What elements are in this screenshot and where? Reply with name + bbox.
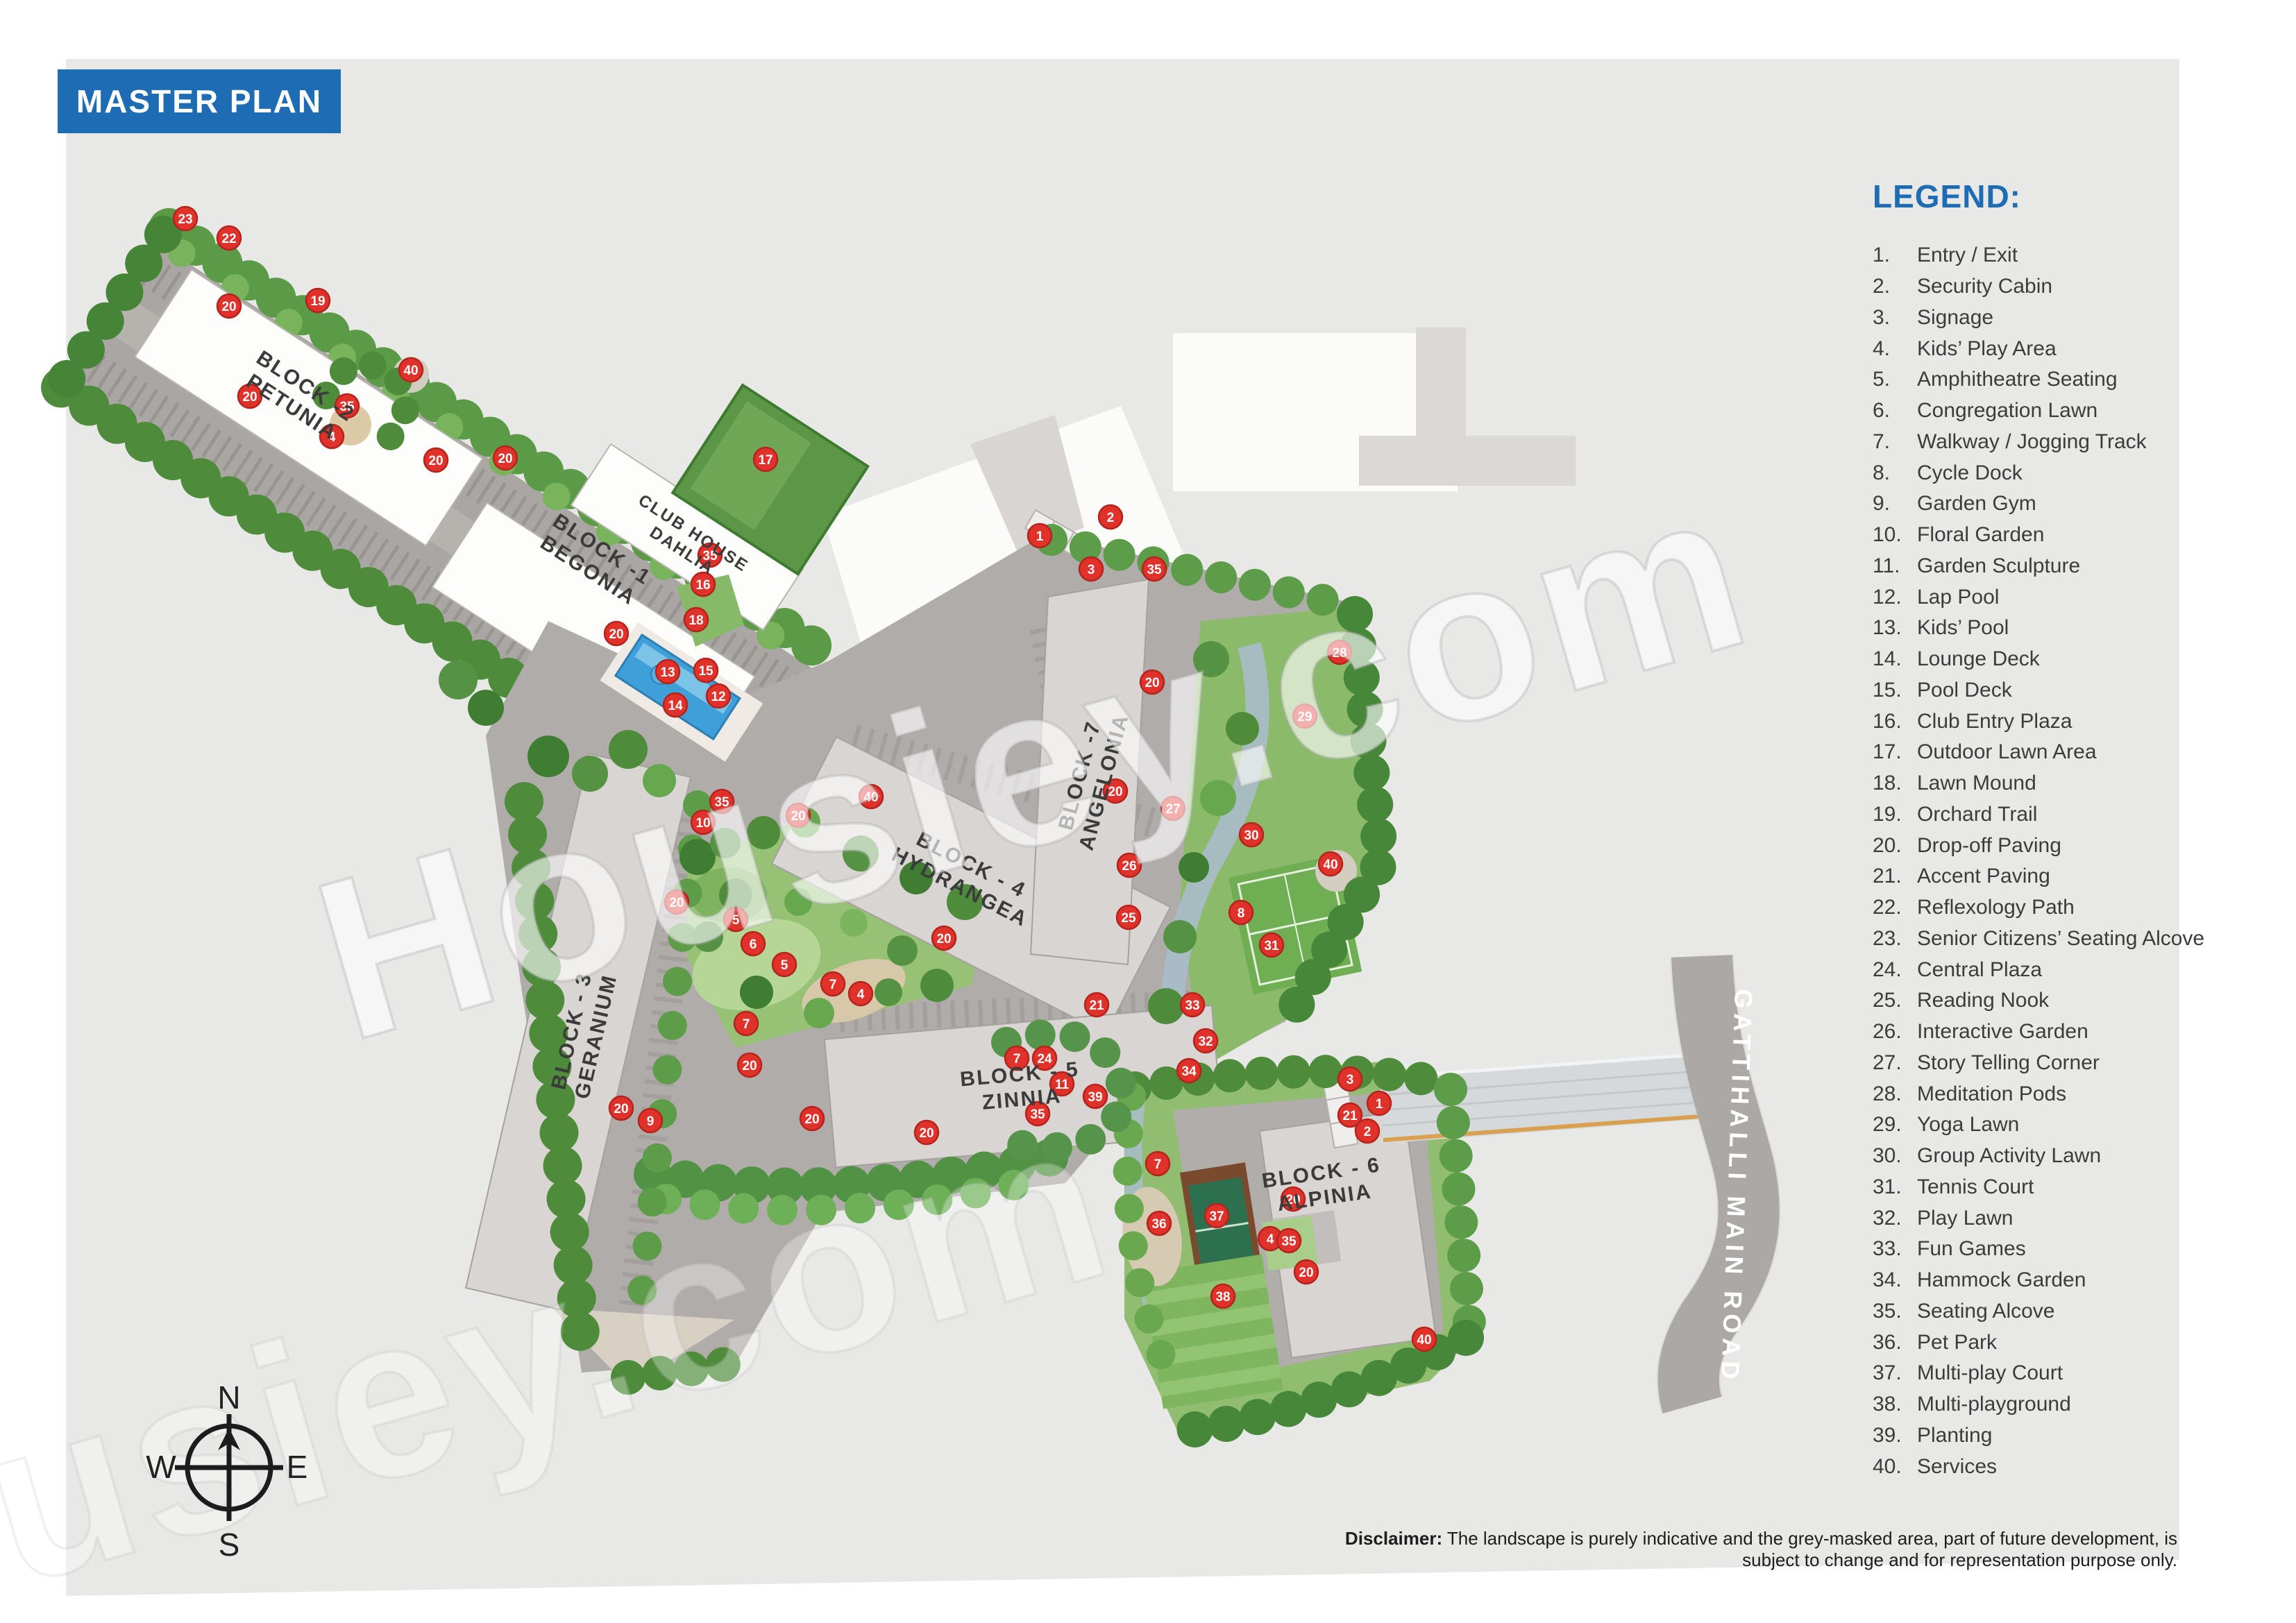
legend-item: 12.Lap Pool xyxy=(1873,581,2199,613)
svg-text:40: 40 xyxy=(1417,1333,1431,1348)
legend-item-label: Reflexology Path xyxy=(1917,896,2075,919)
legend-item: 11.Garden Sculpture xyxy=(1873,551,2199,582)
legend-item: 32.Play Lawn xyxy=(1873,1203,2199,1234)
legend-item-number: 6. xyxy=(1873,399,1917,423)
legend-item: 33.Fun Games xyxy=(1873,1234,2199,1265)
legend-item-label: Lounge Deck xyxy=(1917,647,2040,671)
map-marker: 34 xyxy=(1177,1059,1201,1082)
map-marker: 7 xyxy=(734,1012,758,1035)
map-marker: 16 xyxy=(691,572,715,596)
map-marker: 20 xyxy=(605,622,628,645)
map-marker: 31 xyxy=(1260,933,1283,957)
svg-text:7: 7 xyxy=(743,1017,750,1032)
map-marker: 40 xyxy=(399,358,423,382)
legend-item-number: 27. xyxy=(1873,1051,1917,1075)
svg-text:20: 20 xyxy=(498,452,512,466)
legend-item-number: 28. xyxy=(1873,1082,1917,1106)
legend-item-number: 1. xyxy=(1873,244,1917,267)
svg-text:22: 22 xyxy=(221,232,236,246)
disclaimer: Disclaimer: The landscape is purely indi… xyxy=(1301,1528,2177,1571)
legend-item: 15.Pool Deck xyxy=(1873,675,2199,706)
legend-item-label: Orchard Trail xyxy=(1917,803,2037,826)
map-marker: 20 xyxy=(1294,1260,1318,1284)
legend-item-number: 11. xyxy=(1873,554,1917,578)
legend-item-label: Meditation Pods xyxy=(1917,1082,2066,1106)
map-marker: 21 xyxy=(1085,993,1108,1017)
map-marker: 35 xyxy=(1142,557,1166,581)
svg-text:3: 3 xyxy=(1347,1073,1354,1087)
map-marker: 35 xyxy=(1277,1229,1301,1252)
legend-item-number: 40. xyxy=(1873,1455,1917,1479)
legend-item: 35.Seating Alcove xyxy=(1873,1296,2199,1327)
svg-text:4: 4 xyxy=(857,987,865,1002)
svg-text:E: E xyxy=(287,1449,308,1485)
svg-text:8: 8 xyxy=(1238,906,1245,921)
svg-text:38: 38 xyxy=(1215,1290,1230,1305)
svg-text:20: 20 xyxy=(1299,1266,1313,1280)
map-marker: 20 xyxy=(800,1107,824,1130)
svg-text:33: 33 xyxy=(1185,999,1199,1013)
legend-item-number: 33. xyxy=(1873,1237,1917,1261)
map-marker: 20 xyxy=(609,1096,633,1120)
svg-text:14: 14 xyxy=(668,699,683,713)
legend-item-number: 2. xyxy=(1873,275,1917,298)
svg-text:37: 37 xyxy=(1209,1209,1224,1224)
map-marker: 17 xyxy=(754,448,777,471)
svg-text:20: 20 xyxy=(936,932,951,946)
svg-text:35: 35 xyxy=(1147,563,1162,577)
legend-item-label: Group Activity Lawn xyxy=(1917,1144,2101,1168)
legend-item-number: 24. xyxy=(1873,958,1917,982)
legend-item-label: Entry / Exit xyxy=(1917,244,2018,267)
legend-item-label: Congregation Lawn xyxy=(1917,399,2097,423)
legend-item: 20.Drop-off Paving xyxy=(1873,830,2199,861)
map-marker: 19 xyxy=(306,289,330,312)
legend-item-label: Drop-off Paving xyxy=(1917,834,2061,858)
legend-item-number: 29. xyxy=(1873,1113,1917,1137)
legend-item-number: 4. xyxy=(1873,337,1917,361)
legend-item-label: Kids’ Pool xyxy=(1917,616,2009,640)
svg-text:21: 21 xyxy=(1089,999,1104,1013)
svg-text:1: 1 xyxy=(1036,529,1044,544)
legend-item-label: Accent Paving xyxy=(1917,865,2050,888)
legend-item-number: 21. xyxy=(1873,865,1917,888)
legend-item-number: 26. xyxy=(1873,1020,1917,1044)
legend-item-number: 20. xyxy=(1873,834,1917,858)
legend-item-number: 25. xyxy=(1873,989,1917,1012)
map-marker: 20 xyxy=(493,446,517,470)
map-marker: 2 xyxy=(1099,505,1122,529)
legend-item-label: Amphitheatre Seating xyxy=(1917,368,2118,391)
legend-item: 4.Kids’ Play Area xyxy=(1873,333,2199,364)
legend-item-number: 34. xyxy=(1873,1268,1917,1292)
legend-item: 9.Garden Gym xyxy=(1873,488,2199,520)
svg-text:25: 25 xyxy=(1121,911,1136,926)
svg-text:20: 20 xyxy=(609,627,623,642)
legend-item: 28.Meditation Pods xyxy=(1873,1078,2199,1110)
legend-item: 29.Yoga Lawn xyxy=(1873,1110,2199,1141)
legend-item: 7.Walkway / Jogging Track xyxy=(1873,427,2199,458)
svg-text:40: 40 xyxy=(403,364,418,378)
legend-item-number: 31. xyxy=(1873,1175,1917,1199)
legend-item-label: Garden Sculpture xyxy=(1917,554,2080,578)
svg-text:20: 20 xyxy=(614,1102,628,1116)
map-marker: 7 xyxy=(821,972,845,996)
legend-item: 10.Floral Garden xyxy=(1873,520,2199,551)
legend-item: 8.Cycle Dock xyxy=(1873,457,2199,488)
svg-text:31: 31 xyxy=(1264,939,1279,953)
map-marker: 8 xyxy=(1229,901,1253,924)
legend-item-number: 35. xyxy=(1873,1300,1917,1323)
map-marker: 3 xyxy=(1338,1067,1362,1091)
legend-item-label: Pool Deck xyxy=(1917,679,2012,702)
legend-item-label: Planting xyxy=(1917,1424,1992,1447)
legend-item-number: 8. xyxy=(1873,461,1917,485)
legend-item: 30.Group Activity Lawn xyxy=(1873,1141,2199,1172)
map-marker: 12 xyxy=(707,684,730,708)
legend-item-number: 9. xyxy=(1873,492,1917,516)
legend-item-label: Walkway / Jogging Track xyxy=(1917,430,2147,454)
legend-item: 22.Reflexology Path xyxy=(1873,892,2199,924)
legend-item: 16.Club Entry Plaza xyxy=(1873,706,2199,737)
legend-item-label: Garden Gym xyxy=(1917,492,2036,516)
legend-item-number: 14. xyxy=(1873,647,1917,671)
svg-text:19: 19 xyxy=(310,294,325,309)
legend-item-label: Services xyxy=(1917,1455,1997,1479)
legend-item: 2.Security Cabin xyxy=(1873,271,2199,303)
legend-item-number: 37. xyxy=(1873,1361,1917,1385)
disclaimer-text: The landscape is purely indicative and t… xyxy=(1442,1528,2177,1570)
legend-item: 39.Planting xyxy=(1873,1420,2199,1452)
legend-item-number: 17. xyxy=(1873,740,1917,764)
legend-item: 31.Tennis Court xyxy=(1873,1172,2199,1203)
map-marker: 40 xyxy=(1319,852,1342,876)
legend-item: 36.Pet Park xyxy=(1873,1327,2199,1358)
legend-item-number: 3. xyxy=(1873,306,1917,330)
svg-text:36: 36 xyxy=(1151,1217,1166,1232)
legend-item-number: 13. xyxy=(1873,616,1917,640)
legend-item: 17.Outdoor Lawn Area xyxy=(1873,737,2199,768)
legend-item-number: 19. xyxy=(1873,803,1917,826)
svg-text:34: 34 xyxy=(1181,1064,1197,1079)
legend-item-label: Kids’ Play Area xyxy=(1917,337,2057,361)
legend-item: 1.Entry / Exit xyxy=(1873,240,2199,271)
legend-item: 21.Accent Paving xyxy=(1873,861,2199,892)
svg-text:N: N xyxy=(217,1379,240,1416)
legend-item-label: Story Telling Corner xyxy=(1917,1051,2100,1075)
legend-item: 27.Story Telling Corner xyxy=(1873,1048,2199,1079)
svg-text:7: 7 xyxy=(829,978,837,992)
map-marker: 1 xyxy=(1367,1091,1391,1115)
master-plan-page: 2322192020354402020203516181713151214123… xyxy=(0,0,2296,1623)
legend-item: 23.Senior Citizens’ Seating Alcove xyxy=(1873,924,2199,955)
legend-item-number: 36. xyxy=(1873,1331,1917,1354)
map-marker: 4 xyxy=(849,982,872,1005)
map-marker: 38 xyxy=(1211,1284,1235,1308)
map-marker: 13 xyxy=(656,660,679,683)
svg-text:23: 23 xyxy=(178,212,192,227)
legend-item: 18.Lawn Mound xyxy=(1873,768,2199,799)
map-marker: 20 xyxy=(217,294,241,318)
map-marker: 3 xyxy=(1079,557,1103,581)
legend-item-label: Multi-playground xyxy=(1917,1393,2071,1416)
legend-item-number: 23. xyxy=(1873,927,1917,951)
map-marker: 20 xyxy=(424,448,448,472)
legend-item: 13.Kids’ Pool xyxy=(1873,613,2199,644)
svg-text:39: 39 xyxy=(1088,1090,1102,1105)
svg-text:S: S xyxy=(219,1527,240,1563)
legend-item-label: Security Cabin xyxy=(1917,275,2052,298)
legend-item-number: 10. xyxy=(1873,523,1917,547)
legend-item-label: Club Entry Plaza xyxy=(1917,710,2072,733)
legend-item-number: 30. xyxy=(1873,1144,1917,1168)
legend-item-number: 18. xyxy=(1873,772,1917,795)
map-marker: 23 xyxy=(174,207,197,230)
legend-item-number: 22. xyxy=(1873,896,1917,919)
map-marker: 7 xyxy=(1146,1152,1170,1175)
legend-item: 26.Interactive Garden xyxy=(1873,1017,2199,1048)
svg-text:17: 17 xyxy=(758,453,773,468)
svg-text:20: 20 xyxy=(221,300,236,314)
map-marker: 32 xyxy=(1194,1029,1217,1053)
svg-text:35: 35 xyxy=(1281,1234,1297,1249)
map-marker: 18 xyxy=(684,608,708,631)
legend-item-label: Lawn Mound xyxy=(1917,772,2036,795)
legend-item-label: Outdoor Lawn Area xyxy=(1917,740,2097,764)
legend-item-number: 32. xyxy=(1873,1207,1917,1230)
svg-text:16: 16 xyxy=(695,578,710,593)
map-marker: 14 xyxy=(664,693,687,717)
legend-item-label: Signage xyxy=(1917,306,1993,330)
svg-text:20: 20 xyxy=(428,454,443,468)
legend-item-label: Seating Alcove xyxy=(1917,1300,2054,1323)
map-marker: 20 xyxy=(932,926,956,950)
page-title-box: MASTER PLAN xyxy=(58,69,341,133)
svg-text:32: 32 xyxy=(1198,1035,1213,1049)
legend: LEGEND: 1.Entry / Exit2.Security Cabin3.… xyxy=(1873,178,2199,1482)
legend-list: 1.Entry / Exit2.Security Cabin3.Signage4… xyxy=(1873,240,2199,1482)
map-marker: 36 xyxy=(1147,1212,1171,1235)
legend-item-label: Lap Pool xyxy=(1917,586,1999,609)
svg-text:2: 2 xyxy=(1364,1125,1371,1139)
legend-item-label: Senior Citizens’ Seating Alcove xyxy=(1917,927,2204,951)
legend-item: 6.Congregation Lawn xyxy=(1873,396,2199,427)
map-marker: 33 xyxy=(1181,993,1204,1017)
map-marker: 20 xyxy=(738,1053,761,1077)
legend-item: 37.Multi-play Court xyxy=(1873,1358,2199,1389)
map-marker: 1 xyxy=(1028,524,1052,547)
legend-item-label: Cycle Dock xyxy=(1917,461,2023,485)
legend-item-label: Hammock Garden xyxy=(1917,1268,2086,1292)
legend-item-label: Play Lawn xyxy=(1917,1207,2013,1230)
svg-text:2: 2 xyxy=(1107,511,1115,525)
legend-item-label: Floral Garden xyxy=(1917,523,2044,547)
svg-text:18: 18 xyxy=(689,613,703,628)
map-marker: 39 xyxy=(1083,1085,1107,1108)
legend-item: 14.Lounge Deck xyxy=(1873,644,2199,675)
legend-item-number: 12. xyxy=(1873,586,1917,609)
legend-item: 5.Amphitheatre Seating xyxy=(1873,364,2199,396)
svg-text:4: 4 xyxy=(1267,1232,1274,1247)
legend-item: 38.Multi-playground xyxy=(1873,1389,2199,1420)
svg-text:W: W xyxy=(146,1449,176,1485)
legend-item-label: Fun Games xyxy=(1917,1237,2026,1261)
legend-item-label: Central Plaza xyxy=(1917,958,2042,982)
svg-text:3: 3 xyxy=(1088,563,1095,577)
svg-text:12: 12 xyxy=(711,690,725,704)
legend-item: 3.Signage xyxy=(1873,303,2199,334)
legend-item-label: Pet Park xyxy=(1917,1331,1997,1354)
map-marker: 22 xyxy=(217,226,241,250)
legend-item-label: Interactive Garden xyxy=(1917,1020,2088,1044)
map-marker: 9 xyxy=(639,1109,662,1132)
legend-item-number: 5. xyxy=(1873,368,1917,391)
svg-text:40: 40 xyxy=(1323,858,1337,872)
legend-item: 34.Hammock Garden xyxy=(1873,1265,2199,1296)
svg-text:13: 13 xyxy=(660,665,675,680)
svg-text:7: 7 xyxy=(1154,1157,1162,1172)
map-marker: 37 xyxy=(1205,1204,1229,1227)
legend-item-label: Reading Nook xyxy=(1917,989,2049,1012)
legend-item-label: Multi-play Court xyxy=(1917,1361,2063,1385)
map-marker: 25 xyxy=(1117,906,1140,929)
legend-item: 25.Reading Nook xyxy=(1873,985,2199,1017)
svg-text:20: 20 xyxy=(742,1059,757,1073)
svg-text:20: 20 xyxy=(804,1112,819,1127)
map-marker: 2 xyxy=(1356,1119,1379,1143)
map-marker: 15 xyxy=(694,658,718,682)
legend-item-label: Yoga Lawn xyxy=(1917,1113,2019,1137)
legend-item-label: Tennis Court xyxy=(1917,1175,2034,1199)
legend-item: 24.Central Plaza xyxy=(1873,954,2199,985)
svg-text:21: 21 xyxy=(1342,1109,1358,1123)
disclaimer-label: Disclaimer: xyxy=(1345,1528,1442,1549)
legend-item-number: 38. xyxy=(1873,1393,1917,1416)
svg-text:9: 9 xyxy=(647,1114,655,1129)
svg-text:15: 15 xyxy=(698,664,714,679)
legend-item: 40.Services xyxy=(1873,1451,2199,1482)
legend-title: LEGEND: xyxy=(1873,178,2199,215)
page-title: MASTER PLAN xyxy=(76,83,322,120)
legend-item-number: 7. xyxy=(1873,430,1917,454)
svg-text:1: 1 xyxy=(1376,1097,1383,1112)
legend-item: 19.Orchard Trail xyxy=(1873,799,2199,831)
legend-item-number: 16. xyxy=(1873,710,1917,733)
legend-item-number: 39. xyxy=(1873,1424,1917,1447)
legend-item-number: 15. xyxy=(1873,679,1917,702)
map-marker: 40 xyxy=(1412,1327,1436,1351)
